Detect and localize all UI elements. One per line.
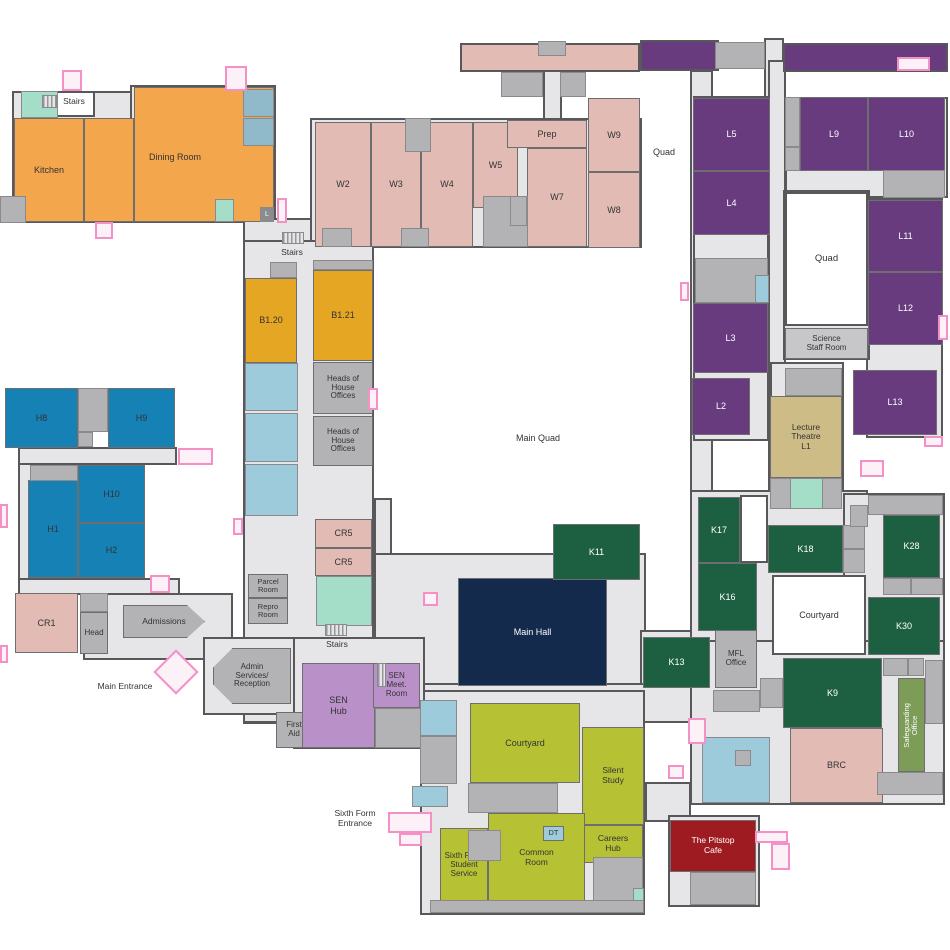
accent-w3-bottom	[401, 228, 429, 247]
accent-mfl-bottom	[713, 690, 760, 712]
room-silent-study: Silent Study	[582, 727, 644, 825]
accent-w7-left	[510, 196, 527, 226]
room-cr1: CR1	[15, 593, 78, 653]
accent-safe-right	[925, 660, 943, 724]
room-cr5-b: CR5	[315, 548, 372, 576]
room-courtyard-6f: Courtyard	[470, 703, 580, 783]
accent-mfl-right	[760, 678, 783, 708]
room-heads-1: Heads of House Offices	[313, 362, 373, 414]
room-dt-label: DT	[549, 829, 559, 837]
room-pitstop-label: The Pitstop Cafe	[692, 836, 735, 855]
accent-h10-left	[30, 465, 78, 481]
room-prep-label: Prep	[537, 129, 556, 139]
room-l4-label: L4	[726, 198, 736, 208]
accent-brc-notch	[735, 750, 751, 766]
room-k30-label: K30	[896, 621, 912, 631]
room-heads-1-label: Heads of House Offices	[327, 375, 359, 402]
accent-top-w	[538, 41, 566, 56]
room-l12: L12	[868, 272, 943, 345]
accent-k28-left	[850, 505, 868, 527]
room-k9: K9	[783, 658, 882, 728]
room-cr5-a-label: CR5	[334, 528, 352, 538]
room-w7-label: W7	[550, 192, 564, 202]
room-h10: H10	[78, 465, 145, 523]
room-admissions-label: Admissions	[142, 617, 185, 627]
room-h1-label: H1	[47, 524, 59, 534]
room-h9: H9	[108, 388, 175, 448]
room-science-staff: Science Staff Room	[785, 328, 868, 359]
accent-k28-bottom-b	[911, 578, 943, 595]
room-l10-label: L10	[899, 129, 914, 139]
room-common-room: Common Room	[488, 813, 585, 903]
room-b121: B1.21	[313, 270, 373, 361]
room-w8-label: W8	[607, 205, 621, 215]
room-w3-label: W3	[389, 179, 403, 189]
room-k30: K30	[868, 597, 940, 655]
label-sixthform-entrance: Sixth Form Entrance	[325, 806, 385, 832]
room-w2-label: W2	[336, 179, 350, 189]
room-kitchen-label: Kitchen	[34, 165, 64, 175]
accent-under-l10	[883, 170, 945, 198]
room-courtyard-6f-label: Courtyard	[505, 738, 545, 748]
label-stairs-kitchen-label: Stairs	[63, 97, 85, 107]
accent-lblue-col	[412, 786, 448, 807]
room-w9-label: W9	[607, 130, 621, 140]
room-b120: B1.20	[245, 278, 297, 363]
room-l13: L13	[853, 370, 937, 435]
room-main-hall: Main Hall	[458, 578, 607, 686]
accent-top-mid	[715, 42, 765, 69]
door-kitchen-top	[62, 70, 82, 91]
label-main-entrance-label: Main Entrance	[98, 682, 153, 692]
room-safeguarding: Safeguarding Office	[898, 678, 925, 772]
door-brc-left	[688, 718, 706, 744]
room-lecture-theatre-label: Lecture Theatre L1	[791, 423, 820, 452]
accent-l9-strip-a	[785, 97, 800, 147]
accent-k18-right-a	[843, 525, 865, 549]
room-l4: L4	[693, 171, 770, 235]
accent-l9-strip-b	[785, 147, 800, 171]
room-silent-study-label: Silent Study	[602, 766, 624, 785]
label-main-quad: Main Quad	[498, 431, 578, 446]
room-k13: K13	[643, 637, 710, 688]
room-dining-a	[84, 118, 134, 222]
room-lecture-theatre: Lecture Theatre L1	[770, 396, 842, 478]
door-silent-right	[668, 765, 684, 779]
label-stairs-link-label: Stairs	[281, 248, 303, 258]
room-h10-label: H10	[103, 489, 120, 499]
room-k28: K28	[883, 515, 940, 578]
room-k18: K18	[768, 525, 843, 573]
room-repro: Repro Room	[248, 598, 288, 624]
room-b120-label: B1.20	[259, 315, 283, 325]
accent-gray-sfss	[468, 830, 501, 861]
room-l3-label: L3	[725, 333, 735, 343]
room-k28-label: K28	[903, 541, 919, 551]
accent-lecture-mint	[790, 478, 823, 509]
room-cr5-a: CR5	[315, 519, 372, 548]
room-l10: L10	[868, 97, 945, 171]
room-k11: K11	[553, 524, 640, 580]
room-sen-meet-label: SEN Meet. Room	[386, 672, 407, 699]
room-pitstop: The Pitstop Cafe	[670, 820, 756, 872]
label-quad-top-label: Quad	[653, 147, 675, 157]
room-h8-label: H8	[36, 413, 48, 423]
accent-gray-bottom	[430, 900, 644, 913]
accent-lblue-2	[245, 413, 298, 462]
accent-lblue-3	[245, 464, 298, 516]
room-l3: L3	[693, 303, 768, 373]
door-sen-right	[423, 592, 438, 606]
room-head: Head	[80, 612, 108, 654]
accent-k9-right-b	[908, 658, 924, 676]
door-lecture-right	[860, 460, 884, 477]
door-dining-top	[225, 66, 247, 91]
room-l11-label: L11	[898, 231, 912, 241]
room-courtyard-k: Courtyard	[772, 575, 866, 655]
room-mfl: MFL Office	[715, 630, 757, 688]
room-l11: L11	[868, 200, 943, 272]
room-head-label: Head	[84, 629, 103, 638]
room-heads-2-label: Heads of House Offices	[327, 428, 359, 455]
room-prep: Prep	[507, 120, 587, 148]
door-cr1-left	[0, 645, 8, 663]
room-w5-label: W5	[489, 160, 503, 170]
accent-b120-top	[270, 262, 297, 278]
accent-brc-bottom	[877, 772, 943, 795]
label-stairs-cr5: Stairs	[317, 638, 357, 651]
room-l5: L5	[693, 98, 770, 171]
label-main-quad-label: Main Quad	[516, 433, 560, 443]
label-main-entrance: Main Entrance	[85, 680, 165, 693]
room-k17-label: K17	[711, 525, 727, 535]
accent-sen-below	[375, 708, 423, 748]
room-heads-2: Heads of House Offices	[313, 416, 373, 466]
room-parcel: Parcel Room	[248, 574, 288, 598]
accent-lblue-sen	[420, 700, 457, 736]
room-l12-label: L12	[898, 303, 913, 313]
door-sixthform-a	[388, 812, 432, 833]
room-mfl-label: MFL Office	[726, 650, 747, 668]
door-h-leftedge	[0, 504, 8, 528]
accent-k9-right-a	[883, 658, 908, 676]
accent-h89-b	[78, 432, 93, 447]
room-k9-label: K9	[827, 688, 838, 698]
room-sen-hub: SEN Hub	[302, 663, 375, 748]
accent-w4-top	[405, 118, 431, 152]
door-dining-right	[277, 198, 287, 223]
room-w7: W7	[527, 148, 587, 247]
accent-mint-dining	[215, 199, 234, 222]
label-sixthform-entrance-label: Sixth Form Entrance	[334, 809, 375, 828]
room-k18-label: K18	[797, 544, 813, 554]
door-pitstop-a	[755, 831, 788, 843]
room-cr5-b-label: CR5	[334, 557, 352, 567]
room-l13-label: L13	[887, 397, 902, 407]
accent-lblue-1	[245, 363, 298, 411]
room-admin-reception-label: Admin Services/ Reception	[234, 663, 270, 690]
door-mainquad-left	[368, 388, 378, 410]
stairs-icon-sen	[377, 663, 386, 687]
room-l2: L2	[692, 378, 750, 435]
label-stairs-kitchen: Stairs	[53, 94, 95, 110]
accent-steel-2	[243, 118, 274, 146]
label-stairs-link: Stairs	[272, 246, 312, 259]
label-dining-label: Dining Room	[149, 152, 201, 162]
label-dining: Dining Room	[120, 150, 230, 164]
door-kitchen-bottom	[95, 222, 113, 239]
accent-pitstop-bottom	[690, 872, 756, 905]
label-stairs-cr5-label: Stairs	[326, 640, 348, 650]
accent-k18-right-b	[843, 549, 865, 573]
lift-box-label: L	[265, 211, 269, 219]
door-pitstop-b	[771, 843, 790, 870]
door-h-bottom	[150, 575, 170, 593]
room-parcel-label: Parcel Room	[257, 578, 278, 595]
slab-h-top	[18, 447, 177, 465]
door-h9-right	[178, 448, 213, 465]
room-k11-label: K11	[589, 547, 604, 557]
room-h8: H8	[5, 388, 78, 448]
room-dt: DT	[543, 826, 564, 841]
stairs-icon-link	[282, 232, 304, 244]
room-common-room-label: Common Room	[519, 848, 553, 867]
room-b121-label: B1.21	[331, 310, 355, 320]
accent-gray-row	[468, 783, 558, 813]
door-science-top	[897, 57, 930, 71]
room-k17: K17	[698, 497, 740, 563]
room-l2-label: L2	[716, 401, 726, 411]
accent-k28-bottom-a	[883, 578, 911, 595]
room-l9-label: L9	[829, 129, 839, 139]
accent-lecture-top	[785, 368, 842, 396]
room-main-hall-label: Main Hall	[514, 627, 552, 637]
accent-mint-cr5	[316, 576, 372, 626]
accent-lblue-brc	[702, 737, 770, 803]
room-cr1-label: CR1	[37, 618, 55, 628]
accent-l3-blue	[755, 275, 769, 303]
room-k16: K16	[698, 563, 757, 631]
room-l5-label: L5	[726, 129, 736, 139]
accent-link-b	[560, 72, 586, 97]
accent-b121-top	[313, 260, 373, 270]
room-science-staff-label: Science Staff Room	[807, 335, 847, 353]
door-leftcol	[233, 518, 243, 535]
door-l12-right	[938, 315, 948, 340]
accent-head-top	[80, 593, 108, 612]
floor-plan-map: QuadCourtyardKitchenW2W3W4W5PrepW7W9W8L5…	[0, 0, 950, 950]
room-h2-label: H2	[106, 545, 118, 555]
accent-k28-top	[868, 495, 943, 515]
slab-hall-west	[374, 498, 392, 556]
accent-w2-bottom	[322, 228, 352, 247]
room-k16-label: K16	[719, 592, 735, 602]
band-purple-left	[640, 40, 719, 71]
room-repro-label: Repro Room	[258, 603, 278, 620]
room-h2: H2	[78, 523, 145, 578]
door-l13-bottom	[924, 436, 943, 447]
room-w8: W8	[588, 172, 640, 248]
door-sixthform-b	[399, 833, 422, 846]
accent-gray-bl	[0, 196, 26, 223]
label-quad-top: Quad	[640, 145, 688, 159]
accent-link-a	[501, 72, 543, 97]
door-l3-left	[680, 282, 689, 301]
accent-steel-1	[243, 89, 274, 117]
room-first-aid-label: First Aid	[286, 721, 302, 739]
stairs-icon-cr5	[325, 624, 347, 636]
room-h1: H1	[28, 480, 78, 578]
room-safeguarding-label: Safeguarding Office	[903, 703, 920, 748]
room-k13-label: K13	[668, 657, 684, 667]
room-w4-label: W4	[440, 179, 454, 189]
lift-box: L	[260, 207, 274, 222]
room-careers-hub-label: Careers Hub	[598, 834, 628, 853]
room-brc-label: BRC	[827, 760, 846, 770]
room-quad-science: Quad	[785, 192, 868, 326]
room-brc: BRC	[790, 728, 883, 803]
gap-k17	[740, 495, 768, 563]
room-admin-reception: Admin Services/ Reception	[213, 648, 291, 704]
room-quad-science-label: Quad	[815, 254, 838, 265]
accent-gray-col	[420, 736, 457, 784]
room-l9: L9	[800, 97, 868, 171]
accent-h89	[78, 388, 108, 432]
room-h9-label: H9	[136, 413, 148, 423]
room-w9: W9	[588, 98, 640, 172]
room-sen-hub-label: SEN Hub	[329, 695, 348, 715]
room-courtyard-k-label: Courtyard	[799, 610, 839, 620]
